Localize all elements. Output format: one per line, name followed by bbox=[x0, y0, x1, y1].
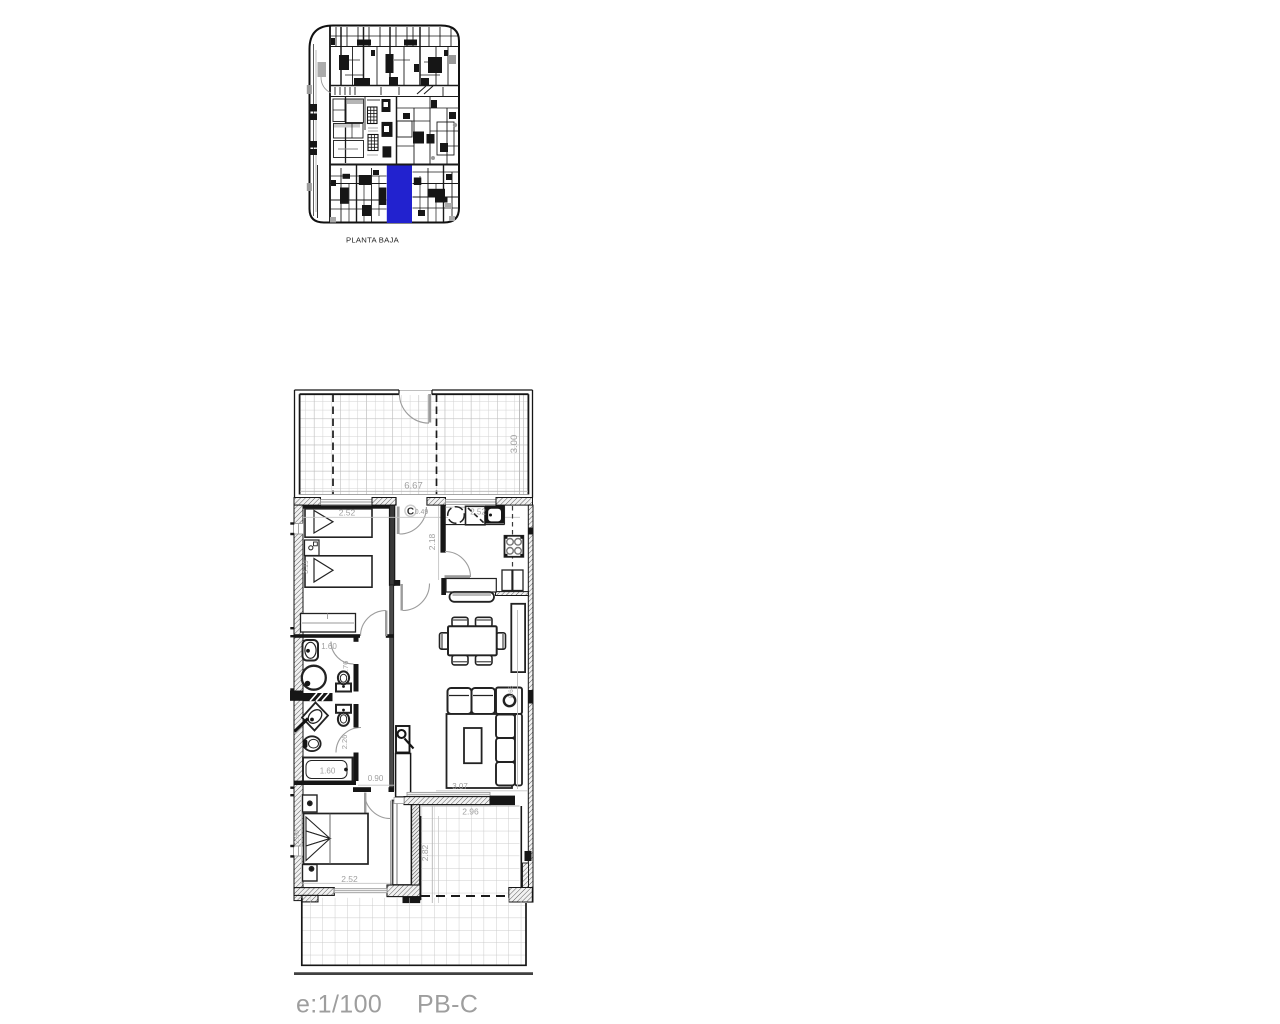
svg-text:PLANTA BAJA: PLANTA BAJA bbox=[346, 235, 400, 244]
svg-text:2.18: 2.18 bbox=[427, 533, 437, 550]
svg-text:0.49: 0.49 bbox=[415, 509, 429, 516]
svg-text:6.67: 6.67 bbox=[404, 481, 423, 492]
svg-text:3.07: 3.07 bbox=[452, 782, 468, 791]
svg-text:3.00: 3.00 bbox=[509, 435, 520, 454]
svg-text:1.60: 1.60 bbox=[320, 767, 336, 776]
svg-text:3.19: 3.19 bbox=[303, 560, 310, 574]
svg-text:2.96: 2.96 bbox=[294, 830, 301, 844]
svg-text:1.60: 1.60 bbox=[321, 642, 337, 651]
svg-text:2.52: 2.52 bbox=[470, 508, 486, 517]
svg-text:2.82: 2.82 bbox=[420, 844, 430, 861]
svg-text:C: C bbox=[407, 507, 414, 518]
svg-text:0.65: 0.65 bbox=[508, 685, 515, 698]
svg-text:2.96: 2.96 bbox=[462, 807, 479, 817]
svg-text:e:1/100: e:1/100 bbox=[296, 991, 382, 1019]
svg-text:0.90: 0.90 bbox=[368, 774, 384, 783]
svg-text:PB-C: PB-C bbox=[417, 991, 478, 1019]
svg-text:2.52: 2.52 bbox=[339, 508, 356, 518]
svg-text:2.52: 2.52 bbox=[341, 874, 358, 884]
